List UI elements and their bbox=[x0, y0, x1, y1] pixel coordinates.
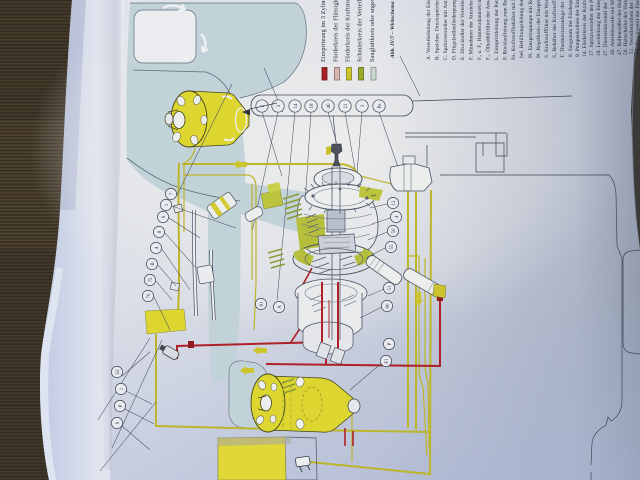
svg-text:18: 18 bbox=[310, 103, 315, 109]
svg-text:T. Thermostartanlage der Ma: T. Thermostartanlage der Maschine bbox=[560, 0, 566, 58]
svg-text:A: A bbox=[278, 305, 283, 309]
svg-text:L. Einspritzleitung der Pump: L. Einspritzleitung der Pumpe bbox=[494, 0, 500, 60]
svg-text:47. Rollenstößel der Hubsche: 47. Rollenstößel der Hubscheibe bbox=[616, 0, 623, 55]
svg-text:27. Überströmventil der Vert: 27. Überströmventil der Verteilung bbox=[602, 0, 609, 56]
svg-text:81: 81 bbox=[260, 301, 265, 307]
svg-text:18. Leckleitung der Einsprit: 18. Leckleitung der Einspritzdüsen bbox=[596, 0, 602, 56]
svg-text:A. Verteilerleitung der Eins: A. Verteilerleitung der Einspritz bbox=[426, 0, 432, 60]
svg-text:F1: F1 bbox=[385, 358, 390, 364]
svg-text:S₂ Behälter der Kraftstoffan: S₂ Behälter der Kraftstoffanlage bbox=[551, 0, 558, 58]
svg-text:bel. Belüftungsleitung der Anl: bel. Belüftungsleitung der Anlage bbox=[518, 0, 525, 58]
svg-text:F₁ u. F₂ Hinterradantrieb mit: F₁ u. F₂ Hinterradantrieb mit Welle bbox=[477, 0, 483, 60]
svg-text:12: 12 bbox=[392, 200, 397, 206]
svg-text:55: 55 bbox=[390, 244, 395, 250]
svg-text:Pa: Pa bbox=[378, 103, 383, 109]
svg-text:F₃. Ölbadlüftfilter der Ansau: F₃. Ölbadlüftfilter der Ansaugluft bbox=[485, 0, 492, 60]
svg-text:70: 70 bbox=[147, 293, 152, 299]
svg-text:S2: S2 bbox=[116, 369, 121, 375]
svg-text:Abb. IV/7 – Wirkschema der E: Abb. IV/7 – Wirkschema der Einspritz bbox=[390, 0, 396, 59]
svg-text:80: 80 bbox=[386, 303, 391, 309]
svg-text:Pa. Kraftstoffbehälter mit Le: Pa. Kraftstoffbehälter mit Leitung bbox=[510, 0, 517, 60]
svg-text:75: 75 bbox=[149, 277, 154, 283]
svg-text:S: S bbox=[116, 421, 121, 424]
svg-text:8. Saugraum der Förderpumpe: 8. Saugraum der Förderpumpe mit bbox=[568, 0, 574, 57]
svg-text:17. Spritzversteller der Pum: 17. Spritzversteller der Pumpenwelle bbox=[589, 0, 595, 56]
svg-text:C. Spritzversteller mit Antr: C. Spritzversteller mit Antrieb bbox=[443, 0, 449, 60]
svg-text:P: P bbox=[119, 404, 124, 407]
svg-text:D. Flügelzellenförderpumpe d: D. Flügelzellenförderpumpe der bbox=[451, 0, 458, 60]
svg-text:14: 14 bbox=[294, 103, 299, 109]
svg-text:Förderkreis der Flüssigkeit: Förderkreis der Flüssigkeit bbox=[333, 0, 340, 62]
svg-text:11: 11 bbox=[344, 103, 349, 108]
svg-text:Schmierkreis der Verteilerp: Schmierkreis der Verteilerp bbox=[357, 0, 364, 62]
svg-text:Förderkreis der Kraftstoffe: Förderkreis der Kraftstoffe bbox=[345, 0, 352, 62]
svg-text:50: 50 bbox=[392, 228, 397, 234]
svg-text:P: P bbox=[388, 342, 393, 345]
svg-text:Saugluftkreis oder angesau: Saugluftkreis oder angesau bbox=[369, 0, 376, 62]
svg-text:P. Rücklaufleitung zum Behäl: P. Rücklaufleitung zum Behälter bbox=[502, 0, 509, 60]
svg-text:B. Speicher. Druckspeicherra: B. Speicher. Druckspeicherraum bbox=[435, 0, 441, 60]
svg-text:14. Förderkreis der Kraftsto: 14. Förderkreis der Kraftstoffpumpe bbox=[581, 0, 588, 57]
svg-text:51: 51 bbox=[388, 285, 393, 291]
svg-text:F. Mitnehmer der Antriebswel: F. Mitnehmer der Antriebswelle bbox=[469, 0, 475, 60]
svg-text:S. Kraftstofffilter mit Was: S. Kraftstofffilter mit Wasserab bbox=[543, 0, 550, 58]
svg-text:40. Antriebswelle mit Mitneh: 40. Antriebswelle mit Mitnehmer bbox=[610, 0, 616, 55]
svg-text:Pr. Regelkreis der Einspritz: Pr. Regelkreis der Einspritzmenge bbox=[536, 0, 542, 58]
svg-text:55. Druckventil der Einsprit: 55. Druckventil der Einspritzung bbox=[635, 0, 640, 54]
svg-text:Einspritzung im 3 Zylinder: Einspritzung im 3 Zylinder bbox=[320, 0, 327, 62]
svg-text:E. Druckteller der Verteiler: E. Druckteller der Verteilerwelle bbox=[460, 0, 466, 60]
svg-text:40: 40 bbox=[327, 103, 332, 109]
svg-text:Pi. Einspritzpumpe mit Regle: Pi. Einspritzpumpe mit Regler und bbox=[528, 0, 534, 58]
svg-text:9. Pumpenkolben der Einspri: 9. Pumpenkolben der Einspritzung bbox=[575, 0, 581, 57]
